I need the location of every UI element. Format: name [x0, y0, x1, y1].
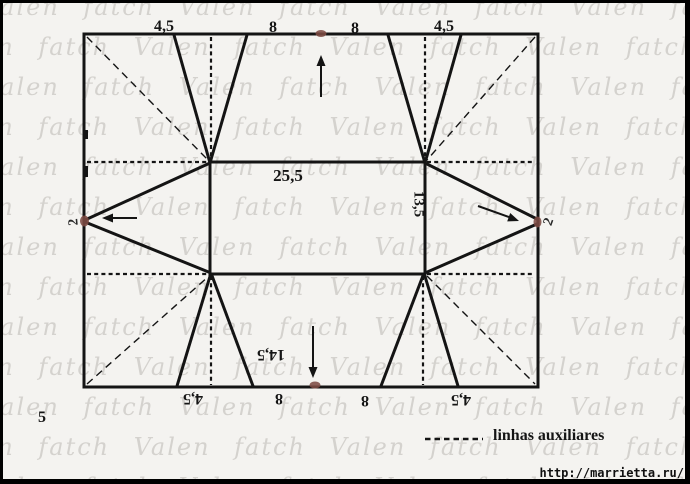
pattern-diagram [0, 0, 690, 484]
arrow-up-icon [317, 55, 326, 97]
arrow-down-icon [309, 326, 318, 378]
dim-top-2: 8 [269, 20, 277, 36]
dim-bottom-1: 4,5 [183, 390, 203, 406]
fold-line-right-lower [425, 224, 537, 273]
fold-line-left-lower [85, 222, 211, 273]
mark-dot-top [316, 30, 327, 37]
arrow-up-head [317, 55, 326, 66]
dim-bottom-3: 8 [361, 392, 369, 408]
dim-center-height: 13,5 [411, 191, 426, 217]
mark-dot-bottom [310, 382, 321, 389]
arrow-right-shaft [478, 206, 509, 217]
dim-bottom-2: 8 [275, 390, 283, 406]
dim-flap: 14,5 [257, 346, 285, 362]
dim-top-1: 4,5 [154, 19, 174, 35]
fold-line-left-upper [85, 163, 210, 220]
dim-top-3: 8 [351, 21, 359, 37]
credit-url: http://marrietta.ru/ [540, 466, 685, 480]
legend-label: linhas auxiliares [493, 427, 604, 445]
fold-line-right-upper [425, 163, 537, 219]
aux-diagonal-bottom-right [427, 276, 535, 384]
aux-diagonal-bottom-left [87, 276, 209, 384]
dim-bottom-4: 4,5 [451, 391, 471, 407]
fold-line-top-right-a [388, 35, 425, 163]
dim-top-4: 4,5 [434, 19, 454, 35]
fold-line-top-left-b [210, 35, 247, 163]
inner-rectangle [210, 162, 425, 274]
pattern-page: Valen fatch Valen fatch Valen fatch Vale… [0, 0, 690, 484]
aux-diagonal-top-left [87, 37, 208, 160]
fold-line-top-left-a [174, 35, 210, 163]
fold-line-bottom-right-a [381, 273, 424, 386]
arrow-left-head [102, 214, 113, 223]
outer-rectangle [84, 34, 538, 387]
fold-line-bottom-left-b [211, 273, 253, 386]
arrow-left-icon [102, 214, 137, 223]
step-number: 5 [38, 410, 46, 426]
arrow-right-head [507, 213, 519, 221]
fold-line-top-right-b [425, 35, 461, 163]
seam-mark-left: 2 [67, 218, 82, 226]
dim-center-width: 25,5 [273, 167, 303, 184]
arrow-down-head [309, 367, 318, 378]
